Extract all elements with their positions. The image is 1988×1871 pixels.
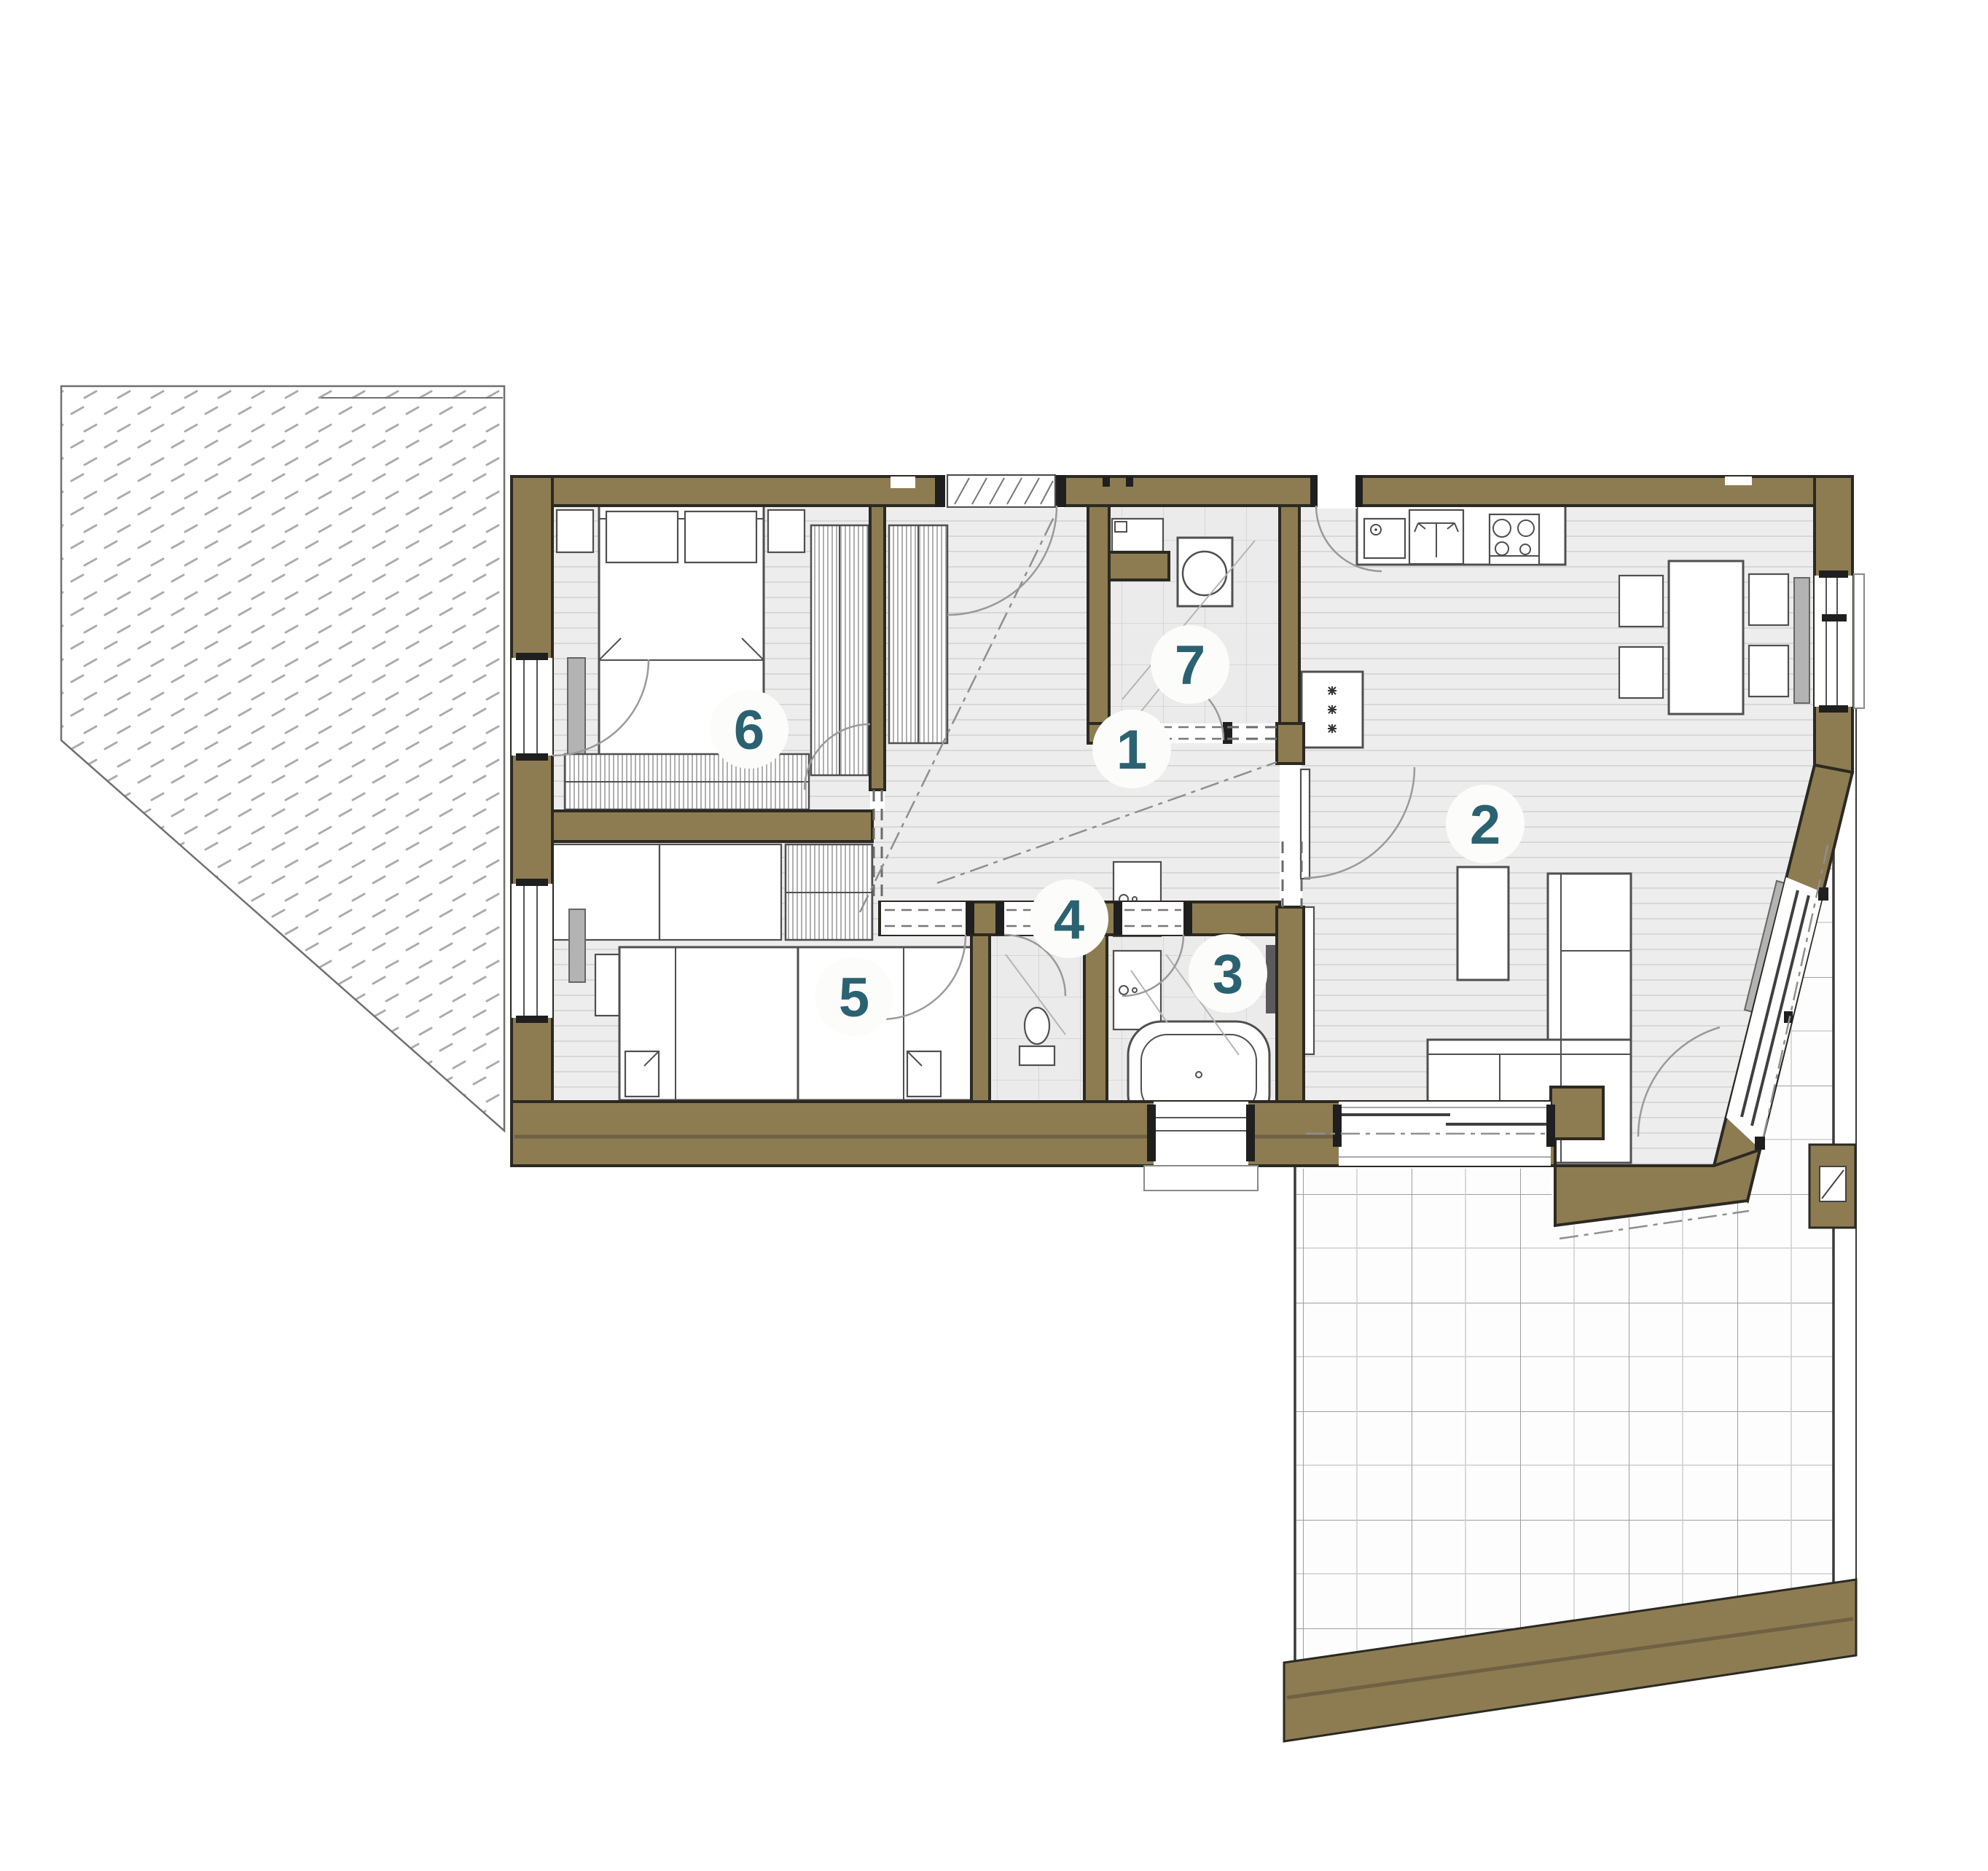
svg-text:6: 6	[734, 699, 764, 761]
wall-pocket-block	[1277, 723, 1304, 764]
dining-chair-2	[1619, 647, 1663, 698]
desk-right	[660, 844, 781, 940]
desk-left	[551, 844, 660, 940]
room-badge: 1	[1092, 710, 1171, 788]
washing-machine-icon	[1178, 538, 1232, 606]
vanity-sink-2	[1114, 951, 1161, 1029]
utility-fixture	[1112, 519, 1163, 552]
nightstand-left	[557, 510, 593, 552]
boiler-cabinet	[1302, 672, 1363, 748]
single-bed-2	[798, 947, 977, 1100]
wall-room5-room4	[971, 935, 990, 1102]
dishwasher-icon	[1409, 510, 1463, 564]
svg-text:2: 2	[1470, 794, 1500, 856]
radiator-dining	[1794, 578, 1809, 703]
svg-text:4: 4	[1054, 889, 1084, 951]
room-badge: 6	[710, 690, 788, 769]
svg-text:5: 5	[839, 967, 869, 1029]
nightstand-right	[768, 510, 805, 552]
wardrobe-room6-side	[811, 525, 869, 775]
single-bed-1	[619, 947, 798, 1100]
wall-room6-room5	[552, 811, 872, 842]
room-badge: 2	[1446, 785, 1525, 863]
dining-table	[1669, 561, 1743, 714]
window-dining	[1815, 570, 1864, 713]
kitchen-counter	[1357, 506, 1565, 565]
window-bathroom	[1144, 1102, 1258, 1191]
cooktop-icon	[1490, 514, 1539, 565]
kitchen-sink-icon	[1364, 519, 1405, 558]
kitchen-service-door	[1310, 474, 1363, 509]
svg-text:1: 1	[1116, 719, 1147, 781]
wardrobe-hallway	[889, 525, 947, 743]
floor-plan-page: 1234567	[0, 0, 1988, 1871]
window-room5	[512, 879, 552, 1023]
wall-top	[512, 476, 1852, 506]
dining-chair-1	[1619, 576, 1663, 627]
room-badge: 5	[815, 957, 893, 1036]
dining-chair-4	[1749, 646, 1788, 697]
wall-room7-west	[1088, 506, 1109, 743]
wall-left	[512, 476, 552, 1166]
sideboard	[1457, 867, 1508, 980]
wall-room3-east	[1277, 907, 1304, 1102]
room-badge: 3	[1189, 934, 1267, 1013]
terrace-pier	[1809, 1145, 1855, 1228]
wall-room7-room2	[1280, 506, 1299, 723]
wall-room4-room3	[1084, 935, 1107, 1102]
dining-chair-3	[1749, 574, 1788, 625]
entrance-door	[935, 474, 1066, 509]
wall-room6-hall	[870, 506, 885, 790]
wardrobe-room5	[786, 844, 872, 940]
wall-room7-niche	[1109, 552, 1169, 580]
wardrobe-room6-bottom	[565, 754, 809, 809]
radiator-room6	[568, 658, 585, 754]
radiator-room5	[569, 909, 585, 982]
window-room6	[512, 653, 552, 761]
svg-text:7: 7	[1175, 635, 1205, 697]
wall-bay-block	[1551, 1087, 1603, 1139]
room-badge: 4	[1030, 879, 1108, 958]
svg-text:3: 3	[1213, 944, 1243, 1005]
room-badge: 7	[1151, 625, 1229, 704]
floor-plan-drawing: 1234567	[0, 0, 1988, 1871]
